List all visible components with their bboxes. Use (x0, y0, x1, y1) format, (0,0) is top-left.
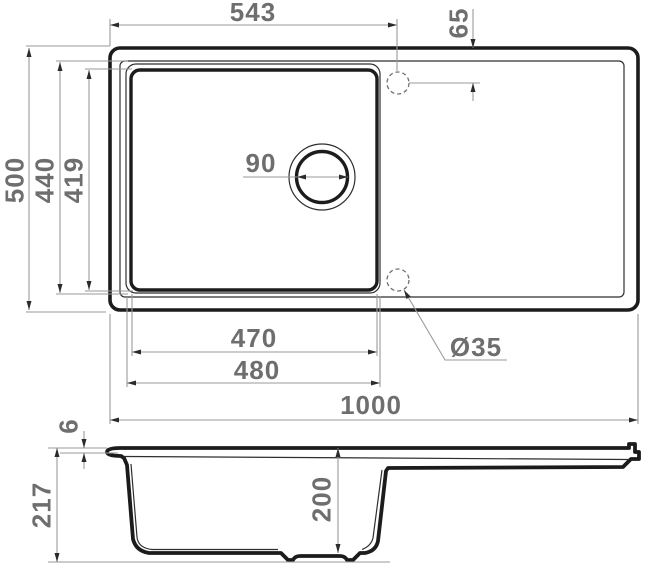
drawing-canvas: 543 65 500 440 419 (0, 0, 645, 570)
dim-6-label: 6 (53, 418, 83, 433)
sink-section-profile (107, 444, 639, 560)
side-view: 6 217 200 (26, 418, 639, 562)
rim-inner-edge (120, 61, 624, 297)
dim-overall-length: 1000 (110, 314, 638, 424)
dim-90-label: 90 (246, 148, 277, 178)
dim-rim-lip-height: 6 (48, 418, 118, 469)
dim-500-label: 500 (0, 157, 29, 203)
dim-overall-height: 217 (26, 448, 57, 562)
dim-tap-hole-offset-x: 543 (110, 0, 397, 71)
sink-outer-edge (110, 48, 638, 310)
dim-65-label: 65 (443, 8, 473, 39)
bowl-inner-edge (131, 70, 377, 290)
sink-technical-drawing: 543 65 500 440 419 (0, 0, 645, 570)
dim-440-label: 440 (29, 157, 59, 203)
top-view: 543 65 500 440 419 (0, 0, 638, 424)
callout-tap-hole-diameter: Ø35 (404, 290, 507, 362)
dim-o35-label: Ø35 (450, 332, 502, 362)
tap-hole-bottom (387, 269, 409, 291)
dim-200-label: 200 (306, 476, 336, 522)
dim-tap-hole-offset-y: 65 (409, 8, 480, 101)
dim-bowl-inner-width: 419 (58, 69, 133, 291)
dim-543-label: 543 (230, 0, 276, 27)
dim-1000-label: 1000 (340, 390, 402, 420)
tap-hole-top (387, 72, 409, 94)
dim-217-label: 217 (26, 482, 56, 528)
dim-480-label: 480 (234, 355, 280, 385)
dim-419-label: 419 (58, 157, 88, 203)
dim-470-label: 470 (231, 323, 277, 353)
dim-bowl-inner-length: 470 (132, 294, 377, 356)
bowl-rim-edge (126, 64, 380, 293)
